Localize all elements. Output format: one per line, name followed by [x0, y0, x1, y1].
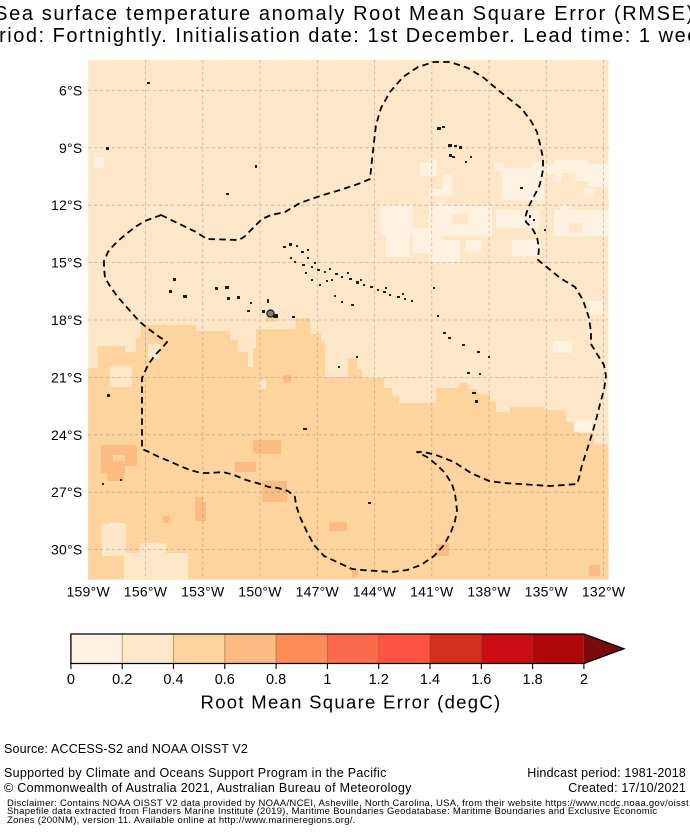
svg-text:132°W: 132°W — [582, 583, 626, 599]
svg-text:153°W: 153°W — [181, 583, 225, 599]
svg-text:0: 0 — [67, 672, 75, 688]
svg-text:2: 2 — [580, 672, 588, 688]
svg-text:1.4: 1.4 — [420, 672, 440, 688]
svg-text:1.6: 1.6 — [471, 672, 491, 688]
svg-text:21°S: 21°S — [51, 369, 83, 385]
svg-text:12°S: 12°S — [51, 197, 83, 213]
svg-text:6°S: 6°S — [59, 82, 82, 98]
svg-text:135°W: 135°W — [525, 583, 569, 599]
svg-text:1.8: 1.8 — [523, 672, 543, 688]
svg-text:156°W: 156°W — [124, 583, 168, 599]
svg-text:24°S: 24°S — [51, 427, 83, 443]
svg-text:9°S: 9°S — [59, 140, 82, 156]
svg-text:150°W: 150°W — [238, 583, 282, 599]
svg-text:141°W: 141°W — [410, 583, 454, 599]
svg-text:30°S: 30°S — [51, 542, 83, 558]
svg-text:159°W: 159°W — [66, 583, 110, 599]
svg-text:Root Mean Square Error (degC): Root Mean Square Error (degC) — [201, 692, 502, 713]
svg-text:0.2: 0.2 — [112, 672, 132, 688]
svg-text:18°S: 18°S — [51, 312, 83, 328]
svg-text:1.2: 1.2 — [369, 672, 389, 688]
svg-text:144°W: 144°W — [353, 583, 397, 599]
svg-text:0.6: 0.6 — [215, 672, 235, 688]
svg-text:27°S: 27°S — [51, 484, 83, 500]
svg-text:138°W: 138°W — [467, 583, 511, 599]
svg-text:147°W: 147°W — [296, 583, 340, 599]
svg-text:0.8: 0.8 — [266, 672, 286, 688]
svg-text:1: 1 — [323, 672, 331, 688]
svg-text:15°S: 15°S — [51, 255, 83, 271]
svg-text:0.4: 0.4 — [163, 672, 183, 688]
